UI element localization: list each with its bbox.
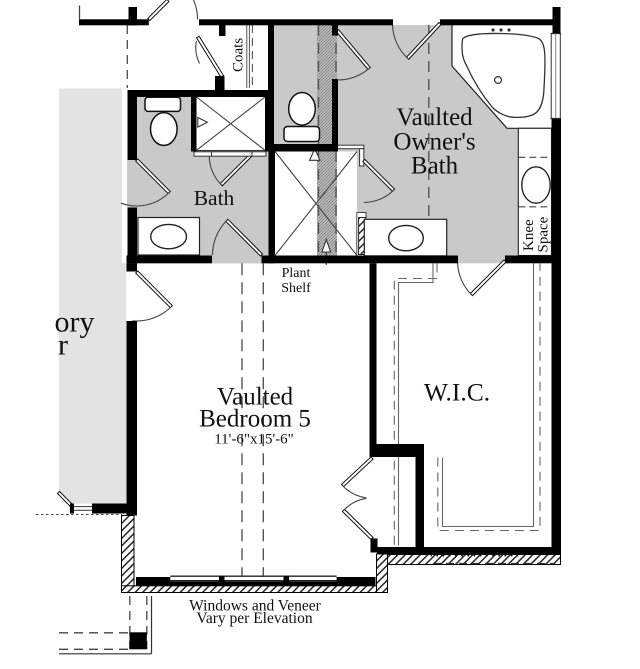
svg-text:Shelf: Shelf xyxy=(281,281,311,296)
svg-text:Bath: Bath xyxy=(194,186,235,210)
svg-text:W.I.C.: W.I.C. xyxy=(424,378,490,407)
svg-text:Owner's: Owner's xyxy=(393,129,475,156)
svg-text:Vary per Elevation: Vary per Elevation xyxy=(196,610,312,627)
svg-text:Vaulted: Vaulted xyxy=(396,104,473,131)
svg-text:Coats: Coats xyxy=(231,38,247,72)
svg-text:Space: Space xyxy=(536,216,552,252)
svg-text:r: r xyxy=(58,329,68,362)
svg-text:11'-6"x15'-6": 11'-6"x15'-6" xyxy=(214,432,294,448)
svg-text:Plant: Plant xyxy=(282,266,311,281)
svg-text:Bedroom 5: Bedroom 5 xyxy=(199,406,311,433)
svg-text:Bath: Bath xyxy=(411,153,459,180)
